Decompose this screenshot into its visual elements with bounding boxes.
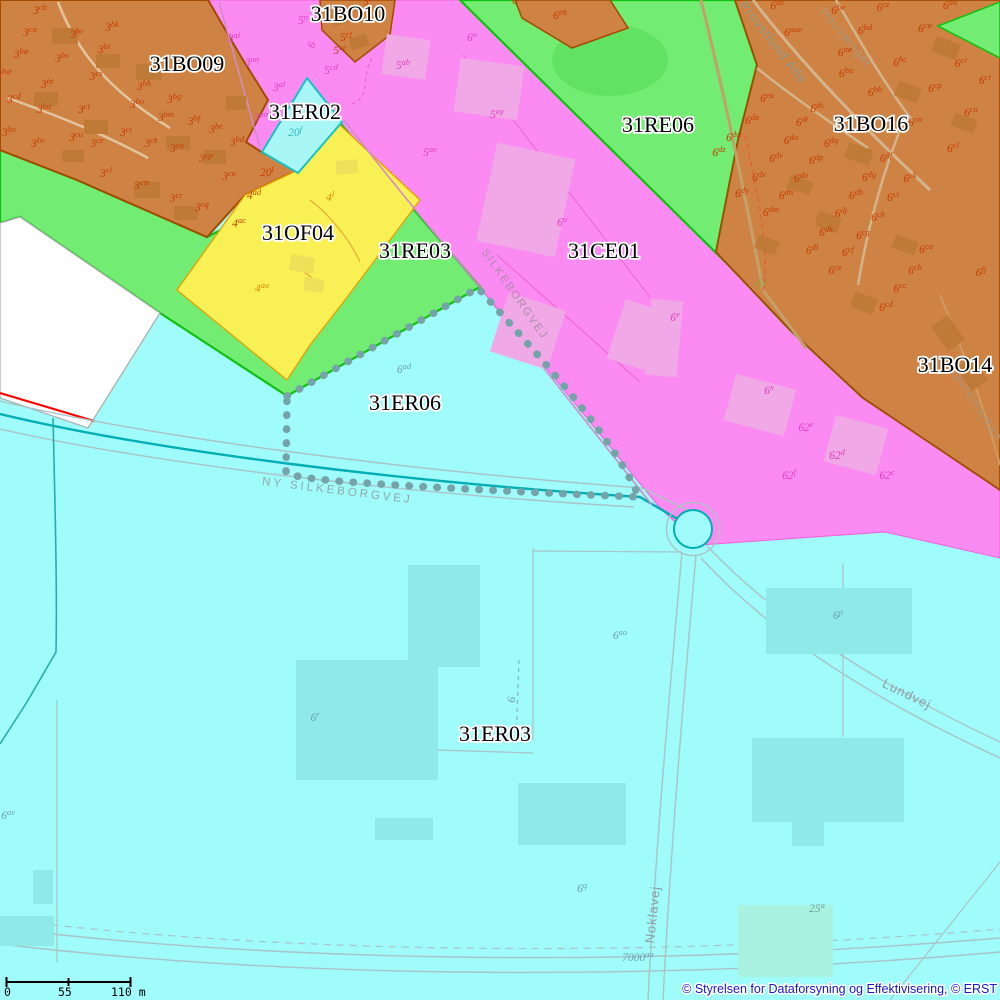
zone-label-31BO10: 31BO10 (311, 1, 386, 26)
zone-label-31BO16: 31BO16 (834, 111, 909, 136)
map-canvas[interactable]: Provstlund AlleHovvængetHavremarkenLundv… (0, 0, 1000, 1000)
zone-label-31ER02: 31ER02 (269, 99, 341, 124)
attribution-text: © Styrelsen for Dataforsyning og Effekti… (682, 982, 997, 996)
scale-label-0: 0 (4, 985, 11, 999)
zone-label-31CE01: 31CE01 (568, 238, 640, 263)
zone-label-31ER06: 31ER06 (369, 390, 441, 415)
zone-label-31BO09: 31BO09 (150, 51, 225, 76)
scale-label-110m: 110 m (111, 985, 146, 999)
zone-label-31OF04: 31OF04 (262, 220, 334, 245)
scale-label-55: 55 (58, 985, 72, 999)
zone-label-31RE06: 31RE06 (622, 112, 694, 137)
green-tinted-parcel (738, 905, 833, 977)
zone-label-31RE03: 31RE03 (379, 238, 451, 263)
zone-label-31BO14: 31BO14 (918, 352, 993, 377)
map-viewport[interactable]: Provstlund AlleHovvængetHavremarkenLundv… (0, 0, 1000, 1000)
zone-label-31ER03: 31ER03 (459, 721, 531, 746)
